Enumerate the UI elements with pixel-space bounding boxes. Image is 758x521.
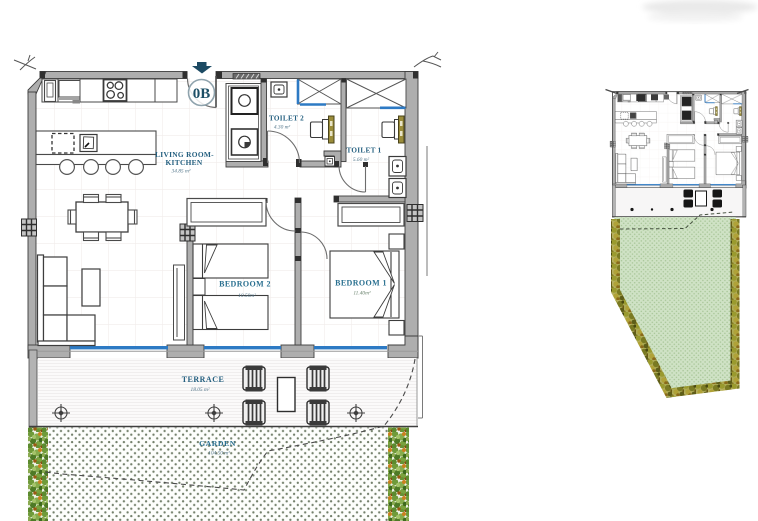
svg-text:18.05 m²: 18.05 m² bbox=[191, 387, 210, 393]
svg-text:BEDROOM 1: BEDROOM 1 bbox=[335, 279, 387, 288]
svg-text:TERRACE: TERRACE bbox=[182, 375, 225, 384]
svg-text:4.30 m²: 4.30 m² bbox=[274, 125, 291, 131]
svg-text:KITCHEN: KITCHEN bbox=[165, 158, 202, 167]
svg-text:5.60 m²: 5.60 m² bbox=[353, 157, 370, 163]
svg-text:GARDEN: GARDEN bbox=[199, 439, 236, 448]
svg-text:34.85 m²: 34.85 m² bbox=[171, 169, 191, 175]
svg-text:104.50 m²: 104.50 m² bbox=[208, 451, 230, 457]
svg-text:11.40m²: 11.40m² bbox=[353, 291, 371, 297]
svg-text:TOILET 2: TOILET 2 bbox=[269, 115, 304, 123]
svg-text:0B: 0B bbox=[193, 86, 211, 102]
svg-text:10.50m²: 10.50m² bbox=[238, 293, 256, 299]
svg-text:BEDROOM 2: BEDROOM 2 bbox=[219, 280, 271, 289]
svg-text:TOILET 1: TOILET 1 bbox=[346, 147, 381, 155]
